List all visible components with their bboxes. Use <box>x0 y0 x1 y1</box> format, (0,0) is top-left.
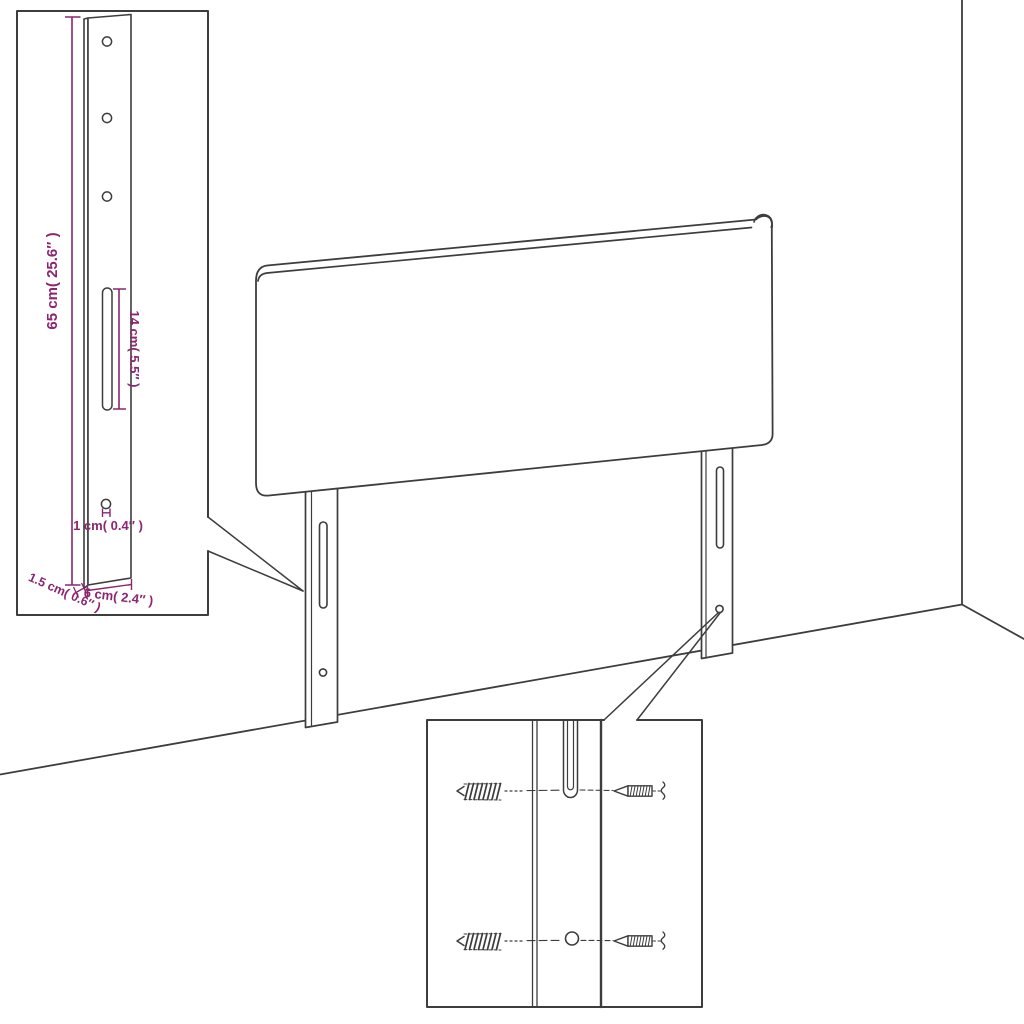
wall-plug-ribs-bottom <box>465 934 501 950</box>
screw-break-mark-top <box>661 782 665 799</box>
callout-line-lower <box>208 551 303 591</box>
bracket-inset-callout-lines <box>208 517 303 591</box>
callout-line-upper <box>208 517 303 591</box>
screw-break-mark-bottom <box>661 932 665 949</box>
screw-tip-top <box>614 786 628 796</box>
wall-floor-line-left <box>0 605 962 775</box>
screw-leader-top <box>580 790 613 791</box>
bracket-hole-4 <box>101 499 110 508</box>
bracket-hole-2 <box>102 113 111 122</box>
headboard-panel <box>256 215 773 496</box>
wall-plug-ribs-top <box>465 784 501 800</box>
dimension-label-65cm: 65 cm( 25.6″ ) <box>44 232 61 329</box>
left-leg-slot <box>320 522 328 608</box>
diagram-canvas: 65 cm( 25.6″ ) 14 cm( 5.5″ ) 1 cm( 0.4″ … <box>0 0 1024 1024</box>
wall-plug-icon-bottom <box>457 934 562 951</box>
screw-icon-top <box>580 782 665 799</box>
bracket-hole-1 <box>102 37 111 46</box>
right-leg-hole <box>716 605 723 612</box>
headboard-left-leg <box>306 479 338 728</box>
screw-icon-bottom <box>581 932 665 949</box>
dimension-label-1cm: 1 cm( 0.4″ ) <box>73 518 143 533</box>
leg-closeup-slot-inner <box>568 720 574 790</box>
leg-closeup-drawing <box>533 720 602 1007</box>
bracket-slot <box>103 288 113 410</box>
screw-inset-border <box>427 720 702 1007</box>
leg-closeup-hole <box>566 932 579 945</box>
assembly-diagram-page: 65 cm( 25.6″ ) 14 cm( 5.5″ ) 1 cm( 0.4″ … <box>0 0 1024 1024</box>
dimension-line-65cm <box>65 17 81 585</box>
leg-closeup-slot-outer <box>564 720 578 798</box>
wall-plug-icon-top <box>457 784 561 801</box>
screw-detail-inset <box>427 720 702 1007</box>
panel-outline <box>256 216 773 496</box>
headboard-right-leg <box>702 442 733 659</box>
bracket-hole-3 <box>102 192 111 201</box>
screw-tip-bottom <box>614 936 628 946</box>
wall-floor-line-right <box>962 605 1024 640</box>
wall-plug-tip-bottom <box>457 937 464 946</box>
dimension-bracket-height: 65 cm( 25.6″ ) <box>44 17 81 585</box>
bracket-detail-inset: 65 cm( 25.6″ ) 14 cm( 5.5″ ) 1 cm( 0.4″ … <box>17 11 208 615</box>
bracket-drawing <box>84 15 131 589</box>
left-leg-hole <box>319 669 326 676</box>
right-leg-slot <box>717 467 724 548</box>
callout-line-right <box>637 613 720 720</box>
wall-plug-tip-top <box>457 787 464 796</box>
dimension-label-14cm: 14 cm( 5.5″ ) <box>127 310 142 387</box>
callout-line-left <box>604 613 718 720</box>
